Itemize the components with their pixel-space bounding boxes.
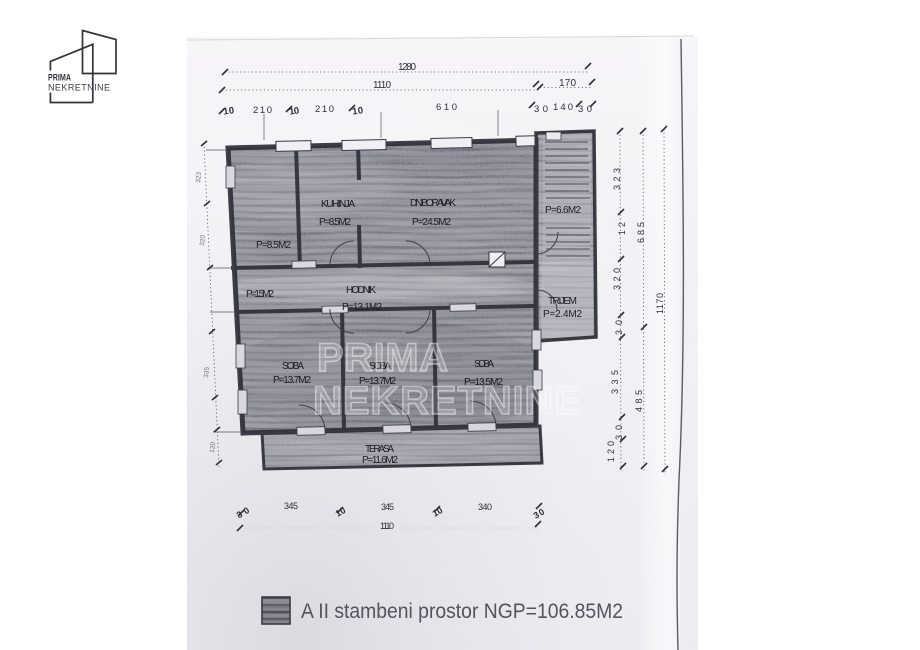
svg-text:610: 610 [436, 102, 457, 113]
svg-text:SOBA: SOBA [282, 361, 304, 372]
svg-text:320: 320 [199, 234, 207, 246]
svg-text:P=8.5M2: P=8.5M2 [256, 240, 291, 251]
svg-text:P=2.4M2: P=2.4M2 [543, 309, 582, 320]
svg-text:HODNIK: HODNIK [346, 285, 376, 296]
svg-text:P=24.5M2: P=24.5M2 [412, 217, 451, 228]
svg-text:10: 10 [222, 105, 234, 117]
svg-text:1170: 1170 [655, 293, 665, 314]
svg-text:1280: 1280 [398, 62, 416, 73]
svg-text:10: 10 [351, 105, 363, 117]
svg-text:340: 340 [478, 502, 492, 512]
svg-text:1110: 1110 [373, 80, 391, 91]
svg-text:P=1.5M2: P=1.5M2 [246, 289, 274, 300]
svg-text:P=6.6M2: P=6.6M2 [545, 205, 581, 216]
svg-text:140: 140 [553, 102, 573, 113]
svg-text:323: 323 [195, 171, 203, 183]
svg-text:120: 120 [209, 441, 217, 453]
svg-text:345: 345 [284, 501, 298, 511]
svg-text:210: 210 [253, 105, 272, 116]
svg-text:P=13.1M2: P=13.1M2 [342, 302, 382, 313]
svg-text:TRIJEM: TRIJEM [548, 296, 577, 307]
svg-text:120: 120 [606, 441, 616, 462]
svg-text:10: 10 [288, 105, 299, 117]
svg-text:P=11.6M2: P=11.6M2 [362, 455, 398, 466]
svg-text:1110: 1110 [380, 521, 394, 531]
svg-text:NEKRETNINE: NEKRETNINE [313, 379, 581, 423]
svg-text:320: 320 [612, 268, 622, 290]
svg-text:SOBA: SOBA [474, 359, 494, 370]
svg-text:DN.BORAVAK: DN.BORAVAK [410, 198, 456, 209]
svg-text:NEKRETNINE: NEKRETNINE [48, 83, 110, 93]
svg-text:PRIMA: PRIMA [317, 336, 448, 380]
svg-text:TERASA: TERASA [365, 444, 394, 455]
svg-text:170: 170 [559, 78, 576, 89]
svg-text:323: 323 [612, 168, 622, 190]
svg-text:335: 335 [203, 366, 211, 378]
svg-text:PRIMA: PRIMA [48, 73, 71, 83]
svg-text:P=8.5M2: P=8.5M2 [319, 217, 351, 228]
svg-text:485: 485 [634, 390, 644, 412]
svg-text:A II stambeni prostor NGP=106.: A II stambeni prostor NGP=106.85M2 [301, 600, 623, 623]
svg-text:P=13.7M2: P=13.7M2 [273, 375, 311, 386]
svg-text:685: 685 [636, 222, 646, 243]
svg-text:335: 335 [610, 370, 620, 394]
svg-text:210: 210 [315, 104, 334, 115]
svg-text:345: 345 [381, 502, 394, 512]
svg-text:KUHINJA: KUHINJA [321, 199, 355, 210]
